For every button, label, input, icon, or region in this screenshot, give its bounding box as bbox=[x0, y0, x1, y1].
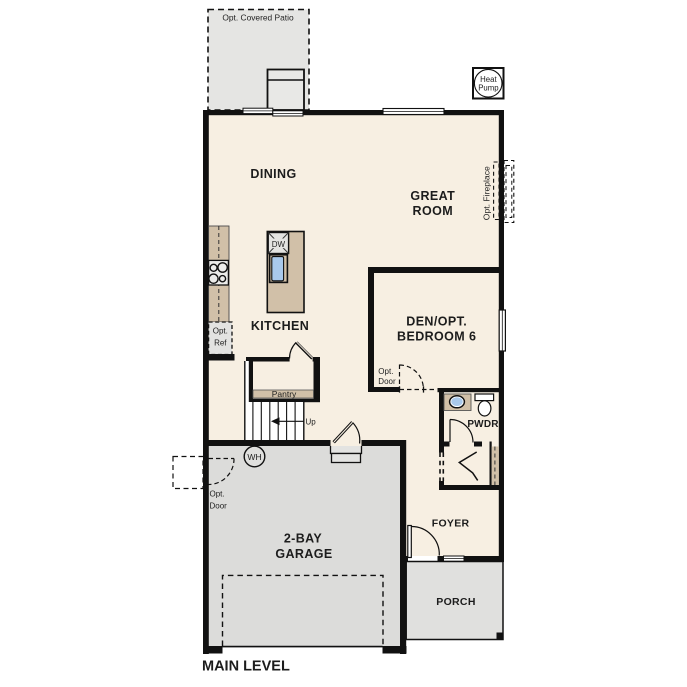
svg-text:Door: Door bbox=[210, 502, 228, 511]
svg-text:Opt.: Opt. bbox=[378, 367, 393, 376]
svg-text:GARAGE: GARAGE bbox=[275, 547, 332, 561]
svg-text:Door: Door bbox=[378, 377, 396, 386]
svg-text:Opt. Covered Patio: Opt. Covered Patio bbox=[222, 13, 294, 23]
svg-text:Opt.: Opt. bbox=[210, 490, 225, 499]
svg-text:Pump: Pump bbox=[478, 83, 499, 92]
svg-text:DEN/OPT.: DEN/OPT. bbox=[406, 315, 467, 329]
svg-text:ROOM: ROOM bbox=[413, 204, 454, 218]
svg-text:WH: WH bbox=[247, 452, 261, 462]
svg-text:DINING: DINING bbox=[250, 167, 296, 181]
svg-text:DW: DW bbox=[272, 240, 286, 249]
svg-text:PORCH: PORCH bbox=[436, 596, 475, 608]
svg-text:Opt. Fireplace: Opt. Fireplace bbox=[481, 166, 491, 220]
svg-text:PWDR: PWDR bbox=[467, 419, 499, 430]
svg-text:Pantry: Pantry bbox=[272, 389, 297, 399]
svg-text:2-BAY: 2-BAY bbox=[284, 532, 323, 546]
svg-text:Opt.: Opt. bbox=[213, 327, 228, 336]
svg-text:Ref: Ref bbox=[214, 339, 227, 348]
svg-text:BEDROOM 6: BEDROOM 6 bbox=[397, 330, 476, 344]
svg-text:GREAT: GREAT bbox=[410, 189, 455, 203]
svg-text:KITCHEN: KITCHEN bbox=[251, 319, 309, 333]
svg-text:MAIN LEVEL: MAIN LEVEL bbox=[202, 659, 290, 675]
svg-text:FOYER: FOYER bbox=[432, 518, 470, 530]
svg-text:Up: Up bbox=[306, 418, 317, 427]
